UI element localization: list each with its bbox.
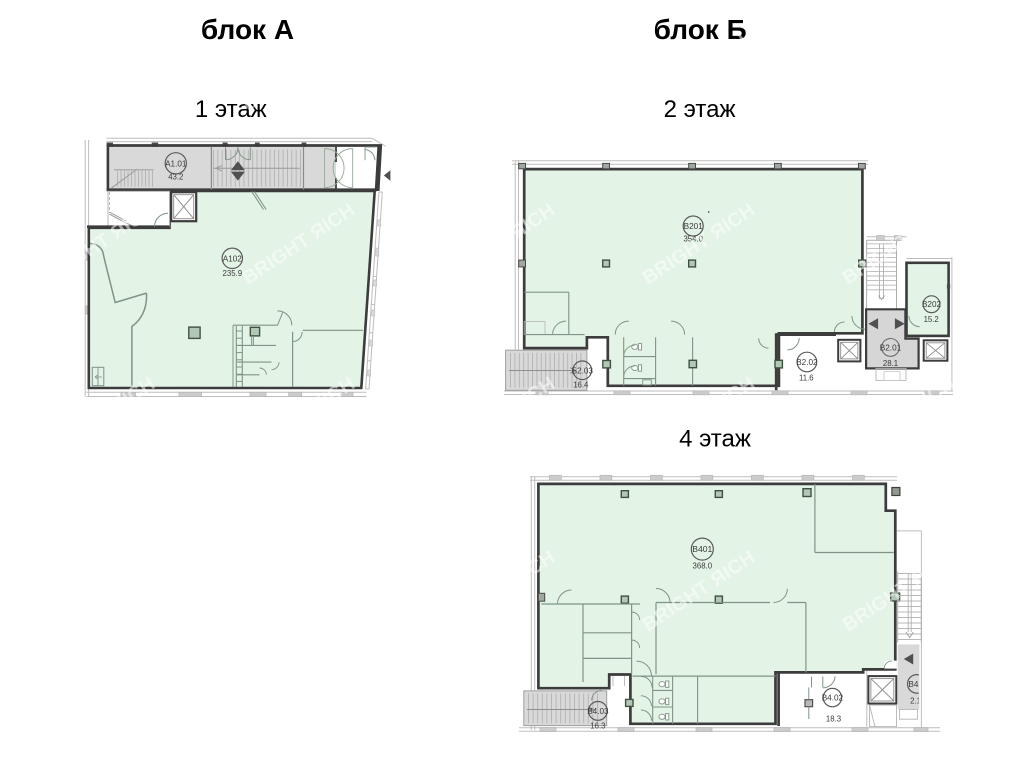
svg-text:A102: A102 <box>223 254 243 263</box>
svg-text:16.4: 16.4 <box>573 380 589 389</box>
svg-text:B4.03: B4.03 <box>587 707 609 716</box>
svg-text:B2.01: B2.01 <box>880 343 902 352</box>
svg-text:11.6: 11.6 <box>799 373 814 382</box>
svg-text:B401: B401 <box>692 544 712 554</box>
svg-text:A1.01: A1.01 <box>165 159 187 168</box>
svg-text:B202: B202 <box>922 300 942 309</box>
svg-text:15.2: 15.2 <box>924 315 939 324</box>
svg-text:Б2.03: Б2.03 <box>572 366 594 375</box>
svg-text:28.1: 28.1 <box>883 359 898 368</box>
svg-text:B2.02: B2.02 <box>796 358 818 367</box>
svg-text:43.2: 43.2 <box>168 173 183 182</box>
svg-text:18.3: 18.3 <box>826 714 841 723</box>
svg-text:368.0: 368.0 <box>693 561 713 570</box>
svg-text:блок А: блок А <box>201 14 294 45</box>
svg-text:B4.02: B4.02 <box>822 694 844 703</box>
svg-text:16.3: 16.3 <box>590 722 605 731</box>
